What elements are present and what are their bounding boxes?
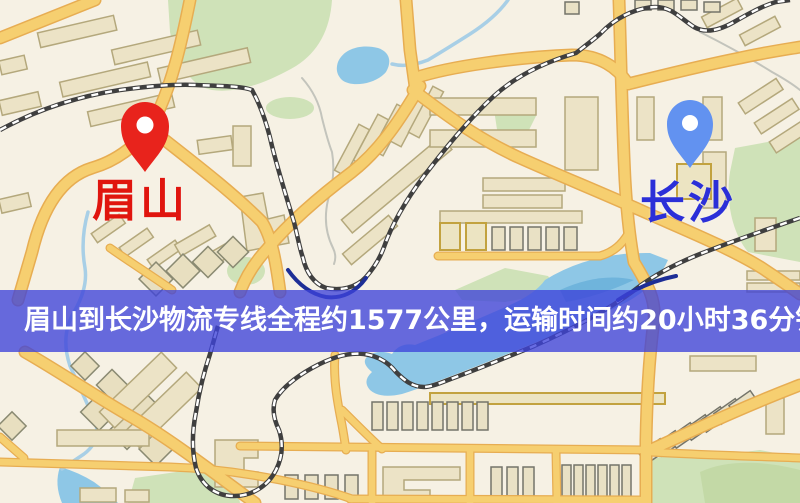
origin-pin-icon[interactable] <box>121 102 169 172</box>
basemap <box>0 0 800 503</box>
route-info-text: 眉山到长沙物流专线全程约1577公里，运输时间约20小时36分钟. <box>24 290 800 352</box>
origin-city-label: 眉山 <box>92 178 188 223</box>
map-canvas[interactable]: 眉山 长沙 眉山到长沙物流专线全程约1577公里，运输时间约20小时36分钟. <box>0 0 800 503</box>
route-info-banner: 眉山到长沙物流专线全程约1577公里，运输时间约20小时36分钟. <box>0 290 800 352</box>
destination-city-label: 长沙 <box>640 180 736 225</box>
